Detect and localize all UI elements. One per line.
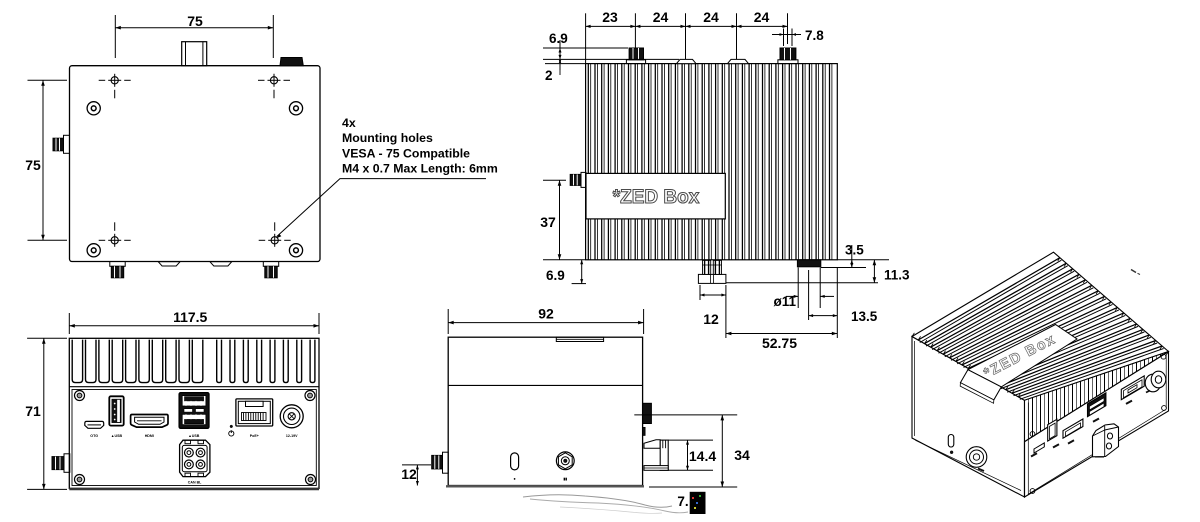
svg-text:34: 34	[734, 447, 750, 463]
svg-text:CAN BL: CAN BL	[188, 481, 202, 485]
svg-text:12: 12	[401, 466, 417, 482]
svg-text:7.: 7.	[677, 494, 688, 509]
svg-text:24: 24	[703, 9, 719, 25]
svg-text:12: 12	[703, 311, 719, 327]
svg-text:12-19V: 12-19V	[286, 434, 298, 438]
svg-text:4x: 4x	[342, 116, 356, 130]
svg-text:14.4: 14.4	[689, 448, 716, 464]
svg-text:24: 24	[653, 9, 669, 25]
svg-text:*ZED Box: *ZED Box	[613, 187, 700, 208]
svg-text:HDMI: HDMI	[145, 434, 154, 438]
svg-text:24: 24	[754, 9, 770, 25]
svg-text:ø11: ø11	[773, 294, 796, 309]
svg-text:PoE+: PoE+	[250, 434, 259, 438]
svg-text:6.9: 6.9	[549, 31, 568, 46]
svg-text:23: 23	[602, 9, 618, 25]
svg-text:37: 37	[540, 214, 556, 230]
svg-text:92: 92	[538, 306, 554, 322]
svg-text:▮▮: ▮▮	[563, 477, 567, 481]
svg-text:71: 71	[25, 403, 41, 419]
svg-text:75: 75	[187, 13, 203, 29]
svg-text:Mounting holes: Mounting holes	[342, 131, 433, 145]
svg-text:M4 x 0.7 Max Length: 6mm: M4 x 0.7 Max Length: 6mm	[342, 162, 498, 176]
svg-text:6.9: 6.9	[546, 268, 565, 283]
svg-text:13.5: 13.5	[851, 309, 878, 324]
svg-text:7.8: 7.8	[805, 28, 824, 43]
svg-text:▲USB: ▲USB	[111, 434, 123, 438]
svg-text:3.5: 3.5	[845, 243, 864, 258]
svg-text:11.3: 11.3	[884, 268, 910, 283]
svg-text:52.75: 52.75	[762, 335, 797, 351]
svg-text:OTG: OTG	[90, 434, 98, 438]
svg-text:2: 2	[545, 68, 553, 83]
svg-text:117.5: 117.5	[173, 309, 207, 325]
svg-text:▲USB: ▲USB	[188, 434, 200, 438]
svg-text:VESA - 75 Compatible: VESA - 75 Compatible	[342, 146, 470, 160]
svg-text:75: 75	[25, 157, 41, 173]
